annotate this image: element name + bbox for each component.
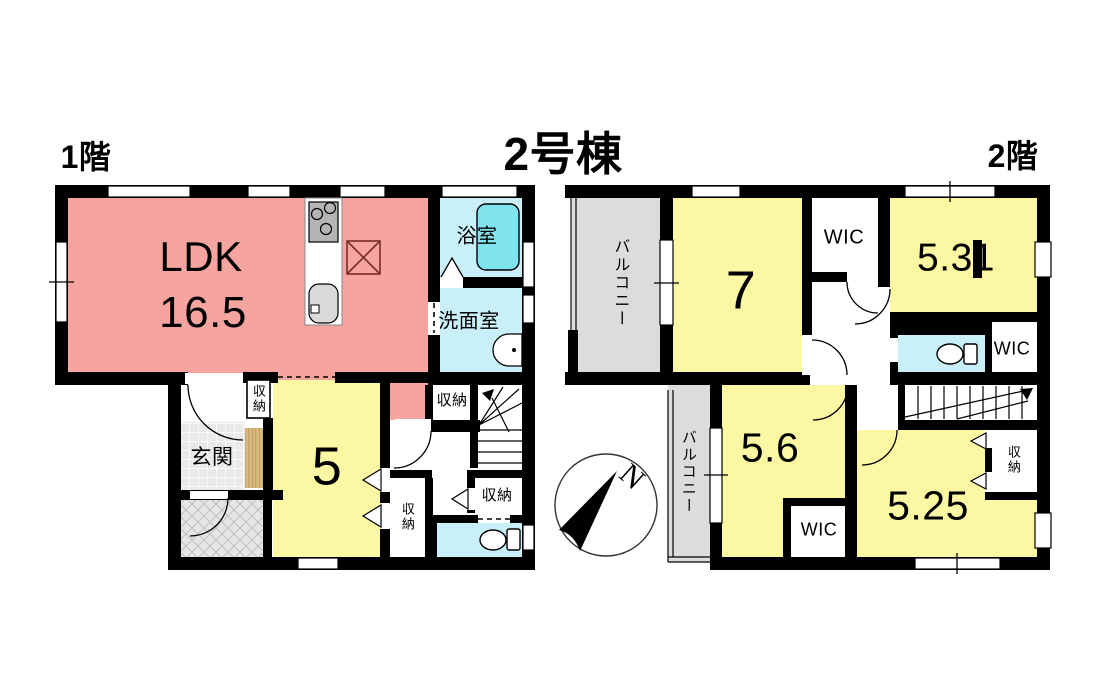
label-bath: 浴室	[457, 227, 498, 248]
label-closet-2f: 収納	[1006, 445, 1020, 475]
stairs-floor2	[905, 386, 1028, 419]
floorplan-graphics	[0, 0, 1100, 700]
kitchen-counter	[305, 198, 342, 325]
label-washroom: 洗面室	[438, 312, 500, 333]
label-room5: 5	[312, 439, 343, 496]
washbasin-icon	[493, 334, 522, 366]
label-closet-lower: 収納	[481, 488, 512, 504]
toilet1-icon	[480, 529, 520, 550]
floorplan-page: 2号棟 1階 2階 LDK 16.5 浴室 洗面室 玄関 5 収納 収納 収納 …	[0, 0, 1100, 700]
sink-icon	[309, 284, 338, 323]
label-wic-bottom: WIC	[801, 521, 838, 540]
label-wic-mid: WIC	[994, 340, 1031, 359]
label-wic-top: WIC	[824, 228, 864, 249]
label-closet-entrance: 収納	[251, 384, 265, 414]
label-room531: 5.31	[917, 239, 995, 280]
label-ldk: LDK	[159, 235, 242, 279]
page-title: 2号棟	[503, 130, 622, 178]
stairs-floor1	[478, 387, 522, 463]
porch	[181, 498, 263, 557]
toilet2-icon	[937, 344, 977, 364]
stove-icon	[309, 202, 338, 242]
entrance-step-wood	[245, 428, 263, 488]
label-entrance: 玄関	[191, 447, 234, 469]
label-room525: 5.25	[887, 484, 969, 527]
floor2-label: 2階	[988, 140, 1039, 174]
label-room7: 7	[726, 263, 757, 320]
label-ldk-area: 16.5	[159, 290, 247, 336]
label-closet-side: 収納	[400, 502, 414, 532]
label-balcony-top: バルコニー	[611, 238, 628, 328]
label-balcony-bottom: バルコニー	[680, 430, 696, 515]
label-closet-hall: 収納	[436, 393, 467, 409]
label-room56: 5.6	[741, 426, 800, 469]
floor1-label: 1階	[61, 141, 112, 175]
